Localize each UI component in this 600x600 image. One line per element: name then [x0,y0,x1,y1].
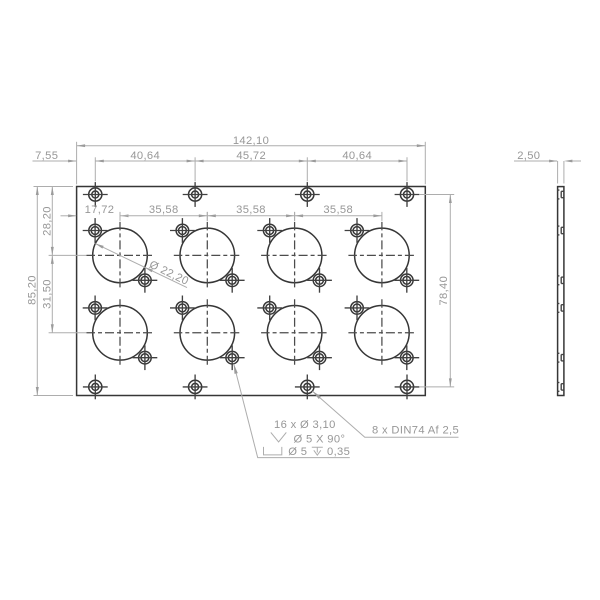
svg-text:8 x DIN74 Af 2,5: 8 x DIN74 Af 2,5 [372,425,459,437]
svg-text:7,55: 7,55 [35,150,58,162]
svg-text:35,58: 35,58 [149,204,179,216]
svg-text:2,50: 2,50 [517,150,540,162]
svg-text:28,20: 28,20 [41,206,53,236]
svg-text:31,50: 31,50 [41,279,53,309]
svg-text:40,64: 40,64 [342,150,372,162]
svg-text:40,64: 40,64 [130,150,160,162]
svg-text:16 x Ø 3,10: 16 x Ø 3,10 [274,419,336,431]
svg-text:0,35: 0,35 [327,446,350,458]
svg-text:78,40: 78,40 [438,276,450,306]
svg-text:Ø 5 X 90°: Ø 5 X 90° [294,434,346,446]
svg-text:35,58: 35,58 [236,204,266,216]
svg-text:17,72: 17,72 [85,204,115,216]
svg-text:45,72: 45,72 [236,150,266,162]
svg-text:Ø 5: Ø 5 [288,446,307,458]
svg-text:35,58: 35,58 [323,204,353,216]
svg-text:85,20: 85,20 [27,275,39,305]
svg-text:142,10: 142,10 [233,135,269,147]
